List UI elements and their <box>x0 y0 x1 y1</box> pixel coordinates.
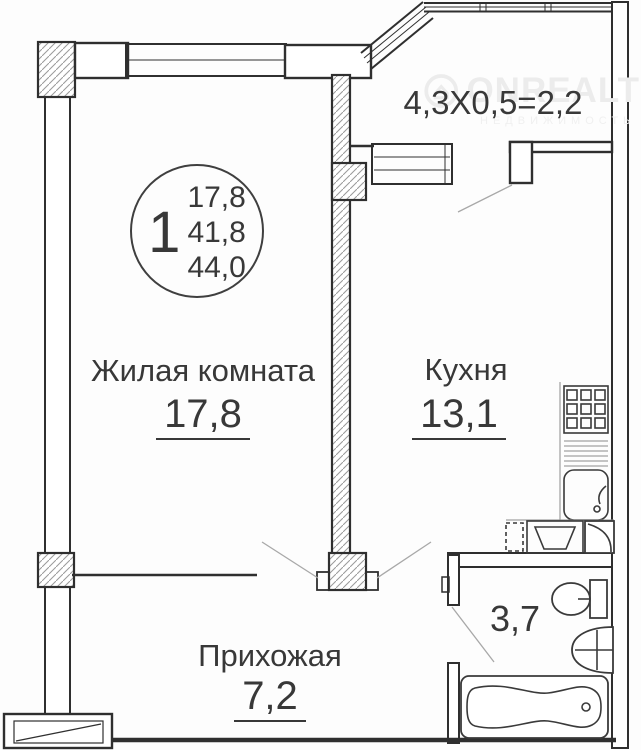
living-room-area: 17,8 <box>72 392 334 440</box>
living-room-door-swing <box>262 542 318 578</box>
bathroom-area: 3,7 <box>480 598 550 640</box>
planned-appliance-outline <box>506 523 523 551</box>
kitchen-sink-faucet <box>599 486 606 504</box>
hallway-area: 7,2 <box>190 674 350 722</box>
kitchen-sink-icon <box>564 470 608 520</box>
kitchen-door-swing <box>377 542 431 578</box>
living-kitchen-wall <box>332 75 350 555</box>
bathroom-left-wall-lower <box>448 663 459 743</box>
balcony-door-swing <box>458 185 512 212</box>
living-area-value: 17,8 <box>187 180 245 215</box>
corner-cabinet <box>585 521 614 553</box>
stove-burner <box>581 418 591 428</box>
column-top-left <box>38 42 75 97</box>
left-wall-upper <box>45 95 70 555</box>
wall-base-foot-left <box>317 572 329 590</box>
balcony-kitchen-wall-step <box>510 142 532 183</box>
floor-plan: ONREALT НЕДВИЖИМОСТЬ 4,3Х0,5=2,2 1 17,8 … <box>0 0 641 750</box>
hallway-label: Прихожая <box>190 638 350 674</box>
stove-burner <box>595 390 605 400</box>
stove-burner <box>595 404 605 414</box>
column-mid-left <box>38 553 74 587</box>
left-wall-lower <box>45 587 70 715</box>
living-room-label: Жилая комната <box>72 353 334 389</box>
kitchen-area: 13,1 <box>393 392 525 440</box>
area-without-balcony-value: 41,8 <box>187 215 245 250</box>
stove-icon <box>564 386 608 433</box>
bathtub-icon <box>461 676 608 738</box>
unit-areas: 17,8 41,8 44,0 <box>187 180 245 285</box>
washing-machine-detail <box>535 527 575 549</box>
wall-base-foot-right <box>366 572 378 590</box>
balcony-dimension-label: 4,3Х0,5=2,2 <box>380 84 606 122</box>
stove-burner <box>567 390 577 400</box>
bathroom-top-wall <box>448 553 612 567</box>
stove-burner <box>567 418 577 428</box>
stove-burner <box>595 418 605 428</box>
stove-burner <box>581 404 591 414</box>
bay-window-line-mid2 <box>367 12 429 63</box>
bay-window-line-outer <box>361 2 423 53</box>
top-wall-segment-center <box>285 45 371 78</box>
toilet-tank <box>590 580 607 618</box>
top-wall-segment-left <box>75 43 128 78</box>
stove-burner <box>567 404 577 414</box>
stove-burner <box>581 390 591 400</box>
kitchen-sink-drain <box>594 506 600 512</box>
bay-window-line-inner <box>371 18 433 69</box>
kitchen-window-sill <box>372 144 452 184</box>
room-count: 1 <box>148 199 180 266</box>
living-kitchen-wall-base <box>329 553 366 590</box>
unit-stamp: 1 17,8 41,8 44,0 <box>130 164 264 298</box>
living-kitchen-wall-pier <box>332 163 366 200</box>
total-area-value: 44,0 <box>187 250 245 285</box>
kitchen-label: Кухня <box>400 352 532 388</box>
